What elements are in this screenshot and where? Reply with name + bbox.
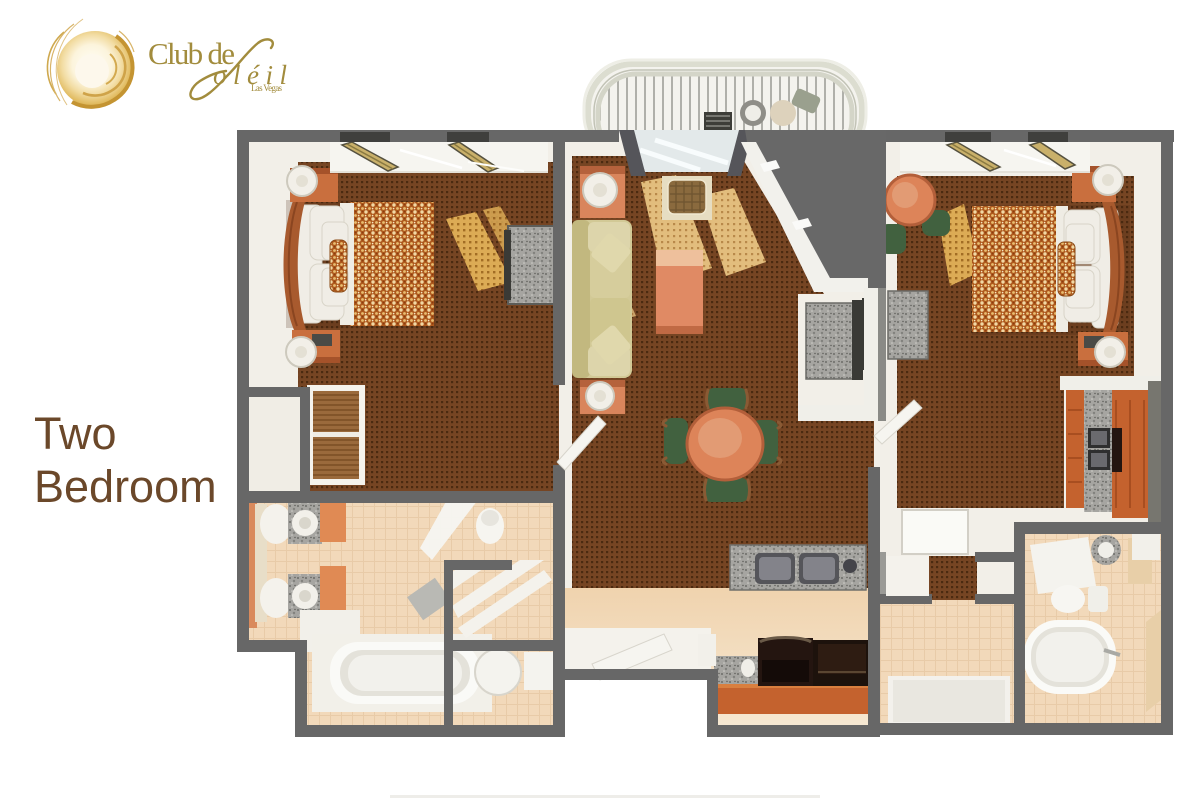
svg-text:Two: Two xyxy=(34,408,117,459)
svg-text:Las Vegas: Las Vegas xyxy=(251,83,282,93)
svg-text:Bedroom: Bedroom xyxy=(34,461,217,512)
